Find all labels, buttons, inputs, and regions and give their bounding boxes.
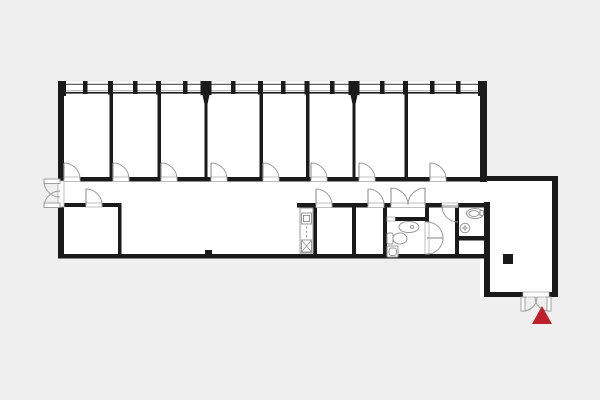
wall [480,82,487,182]
door-threshold [359,177,375,182]
structural-column [503,254,513,264]
wall [455,203,488,208]
wall [395,217,428,221]
wall [455,203,459,258]
door-threshold [430,177,446,182]
bathroom-sink-drain-icon [411,226,414,229]
window-pier [403,81,408,95]
floor-plan-canvas [0,0,600,400]
door-threshold [113,177,129,182]
bathroom-sink-icon [399,222,419,233]
wall [405,93,409,181]
window-pier [108,81,113,95]
door-threshold [161,177,177,182]
wc-sink-inner-icon [469,211,479,217]
wall [549,292,558,297]
window-pier [231,81,236,94]
wall [80,177,113,182]
window-pier [183,81,188,94]
wall [352,203,356,258]
door-threshold [263,177,279,182]
window-pier [456,81,461,94]
wc-tap-icon [480,211,484,216]
door-threshold [316,203,332,208]
wall [118,203,122,258]
door-leaf [521,297,525,311]
wall [205,250,212,255]
wall [446,177,483,182]
wall [484,202,490,297]
wall [459,236,484,241]
window-pier [281,81,286,94]
door-threshold [368,203,384,208]
wall [205,104,208,181]
floor-area [480,176,558,297]
door-threshold [442,203,458,208]
wall [306,93,310,181]
wall [332,203,368,208]
door-leaf [547,297,551,311]
window-pier [305,81,310,95]
window-pier [58,81,66,96]
door-threshold [86,203,102,207]
window-pier [258,81,263,95]
window-pier [349,81,360,95]
door-threshold [387,217,395,221]
wall [425,203,429,222]
window-pier [156,81,161,95]
door-threshold [311,177,327,182]
wall [552,176,558,297]
door-threshold [523,292,549,297]
wall [129,177,161,182]
floor-plan-svg [0,0,600,400]
window-pier [83,81,88,94]
kitchen-sink-basin-icon [304,216,310,222]
window-pier [380,81,385,94]
window-pier [133,81,138,94]
door-leaf [44,203,60,208]
wc-basin-center-icon [464,227,466,229]
window-pier [330,81,335,94]
wall [58,82,64,181]
wall [480,176,558,181]
shower-tray-inner-icon [389,248,397,256]
wall [383,203,387,258]
wall [58,254,490,259]
door-threshold [64,177,80,182]
window-pier [478,81,487,96]
window-pier [201,81,212,95]
toilet-bowl-icon [393,233,407,244]
toilet-tank-icon [387,233,393,244]
floor-area [58,82,487,258]
wall [353,104,356,181]
wall [313,203,317,258]
wall [58,205,64,258]
window-pier [430,81,435,94]
wall [375,177,430,182]
wall [62,203,86,207]
door-leaf [44,179,60,184]
wall [227,177,263,182]
door-threshold [211,177,227,182]
